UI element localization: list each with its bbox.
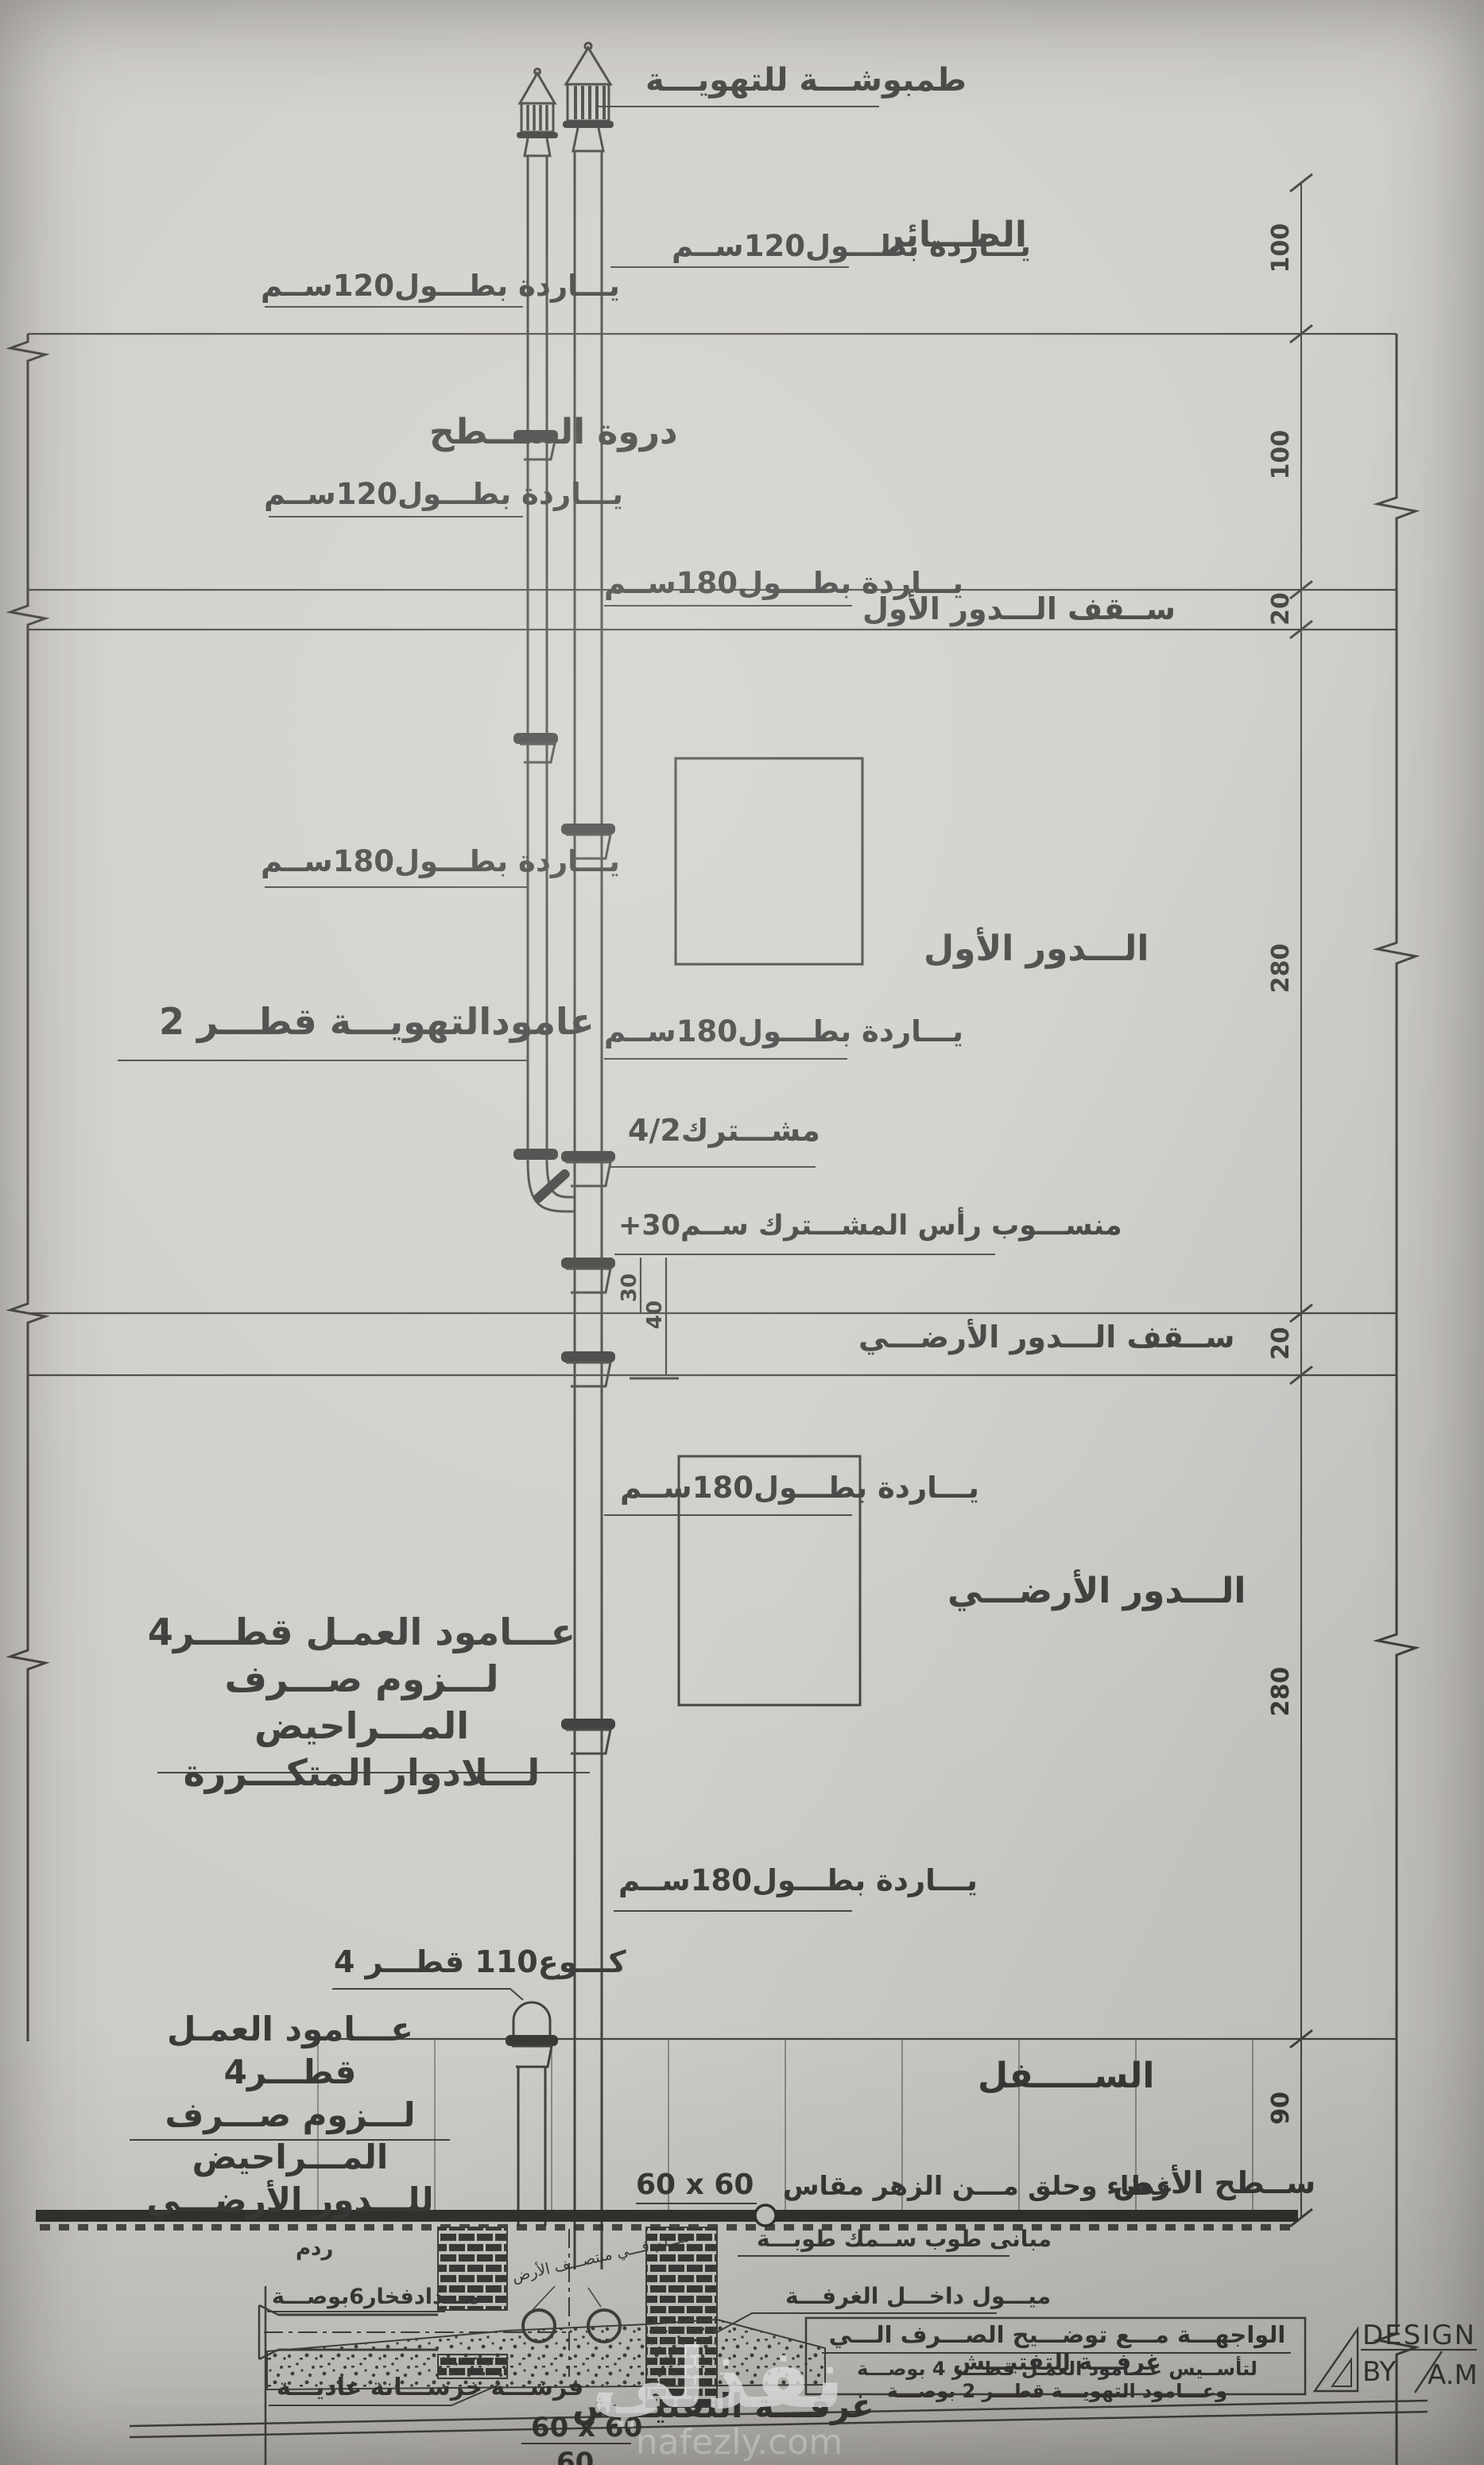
dim-280-floor1: 280	[1267, 936, 1296, 1000]
slab-label-ground-floor: ســقف الـــدور الأرضـــي	[858, 1320, 1234, 1355]
clay-pipe-label: مـــدادفخار6بوصـــة	[272, 2285, 480, 2309]
logo-initials: A.M	[1428, 2359, 1478, 2391]
scanned-drawing-sheet: طمبوشـــة للتهويـــة الطـــائر يـــاردة …	[0, 0, 1484, 2465]
yard120-left-label-2: يـــاردة بطـــول120ســم	[264, 477, 623, 511]
soil-stack-ground-label: عـــامود العمـل قطـــر4 لـــزوم صـــرف ا…	[111, 2008, 469, 2222]
soil-stack-ground-line2: لـــزوم صـــرف المـــراحيض	[111, 2094, 469, 2180]
slope-note-label: ميـــول داخـــل الغرفـــة	[785, 2283, 1051, 2309]
concrete-bed-label: فرشـــة خرســـانة عاديـــة	[277, 2374, 583, 2401]
soil-stack-pipe	[561, 43, 615, 2269]
level-label-lower: الســـــفل	[978, 2056, 1155, 2096]
dim-40-offset: 40	[641, 1283, 669, 1347]
level-label-ground-floor: الـــدور الأرضـــي	[947, 1571, 1246, 1611]
dim-30-offset: 30	[615, 1256, 644, 1320]
backfill-label: ردم	[296, 2237, 333, 2261]
mushtarak-level-label: منســـوب رأس المشـــترك ســم30+	[618, 1210, 1122, 1242]
dim-20-slab0: 20	[1267, 1312, 1296, 1375]
level-label-first-floor: الـــدور الأول	[924, 928, 1149, 969]
cover-size-label: 60 x 60	[636, 2169, 754, 2201]
yard180-left-label: يـــاردة بطـــول180ســم	[261, 844, 620, 878]
wc-elbow-pipe	[506, 2002, 558, 2226]
watermark: نفذلي nafezly.com	[634, 2335, 844, 2463]
dim-100-upper: 100	[1267, 216, 1296, 280]
elbow-label: كـــوع110 قطـــر 4	[334, 1944, 626, 1979]
slab-label-first-floor: ســقف الـــدور الأول	[862, 591, 1176, 626]
dim-280-floor0: 280	[1267, 1660, 1296, 1723]
soil-stack-ground-line3: للـــدور الأرضـــي	[111, 2179, 469, 2222]
brick-wall-label: مبانى طوب ســمك طوبـــة	[757, 2226, 1052, 2252]
chamber-depth-label: 60	[556, 2447, 594, 2465]
vent-stack-label: عامودالتهويـــة قطـــر 2	[159, 1000, 595, 1043]
watermark-brand: نفذلي	[634, 2335, 844, 2422]
soil-stack-typical-line2: لـــزوم صـــرف المـــراحيض	[123, 1656, 600, 1750]
soil-stack-typical-label: عـــامود العمـل قطـــر4 لـــزوم صـــرف ا…	[123, 1609, 600, 1796]
benchmark-circle	[755, 2205, 776, 2226]
soil-stack-typical-line1: عـــامود العمـل قطـــر4	[123, 1609, 600, 1656]
dim-90-plinth: 90	[1267, 2076, 1296, 2140]
yard120-left-label-1: يـــاردة بطـــول120ســم	[261, 269, 620, 303]
logo-by-word: BY	[1362, 2356, 1396, 2388]
mushtarak-label: مشـــترك4/2	[628, 1113, 820, 1148]
dim-100-lower: 100	[1267, 423, 1296, 486]
watermark-domain: nafezly.com	[634, 2422, 844, 2463]
soil-stack-ground-line1: عـــامود العمـل قطـــر4	[111, 2008, 469, 2094]
yard180-right-label-4: يـــاردة بطـــول180ســم	[618, 1863, 978, 1897]
cover-note-label: غطاء وحلق مـــن الزهر مقاس	[783, 2170, 1173, 2201]
soil-stack-typical-line3: لـــلادوار المتكـــررة	[123, 1750, 600, 1796]
dim-20-slab1: 20	[1267, 577, 1296, 641]
title-block-line2: لتأســيس عـــامود العمـل قطـــر 4 بوصـــ…	[819, 2358, 1296, 2402]
yard180-right-label-3: يـــاردة بطـــول180ســم	[620, 1471, 979, 1505]
yard120-right-label: يـــاردة بطـــول120ســم	[672, 229, 1031, 263]
logo-design-word: DESIGN	[1362, 2320, 1476, 2351]
vent-cap-label: طمبوشـــة للتهويـــة	[645, 62, 967, 99]
level-label-parapet: دروة الســـطح	[429, 412, 678, 452]
yard180-right-label-2: يـــاردة بطـــول180ســم	[604, 1014, 963, 1048]
